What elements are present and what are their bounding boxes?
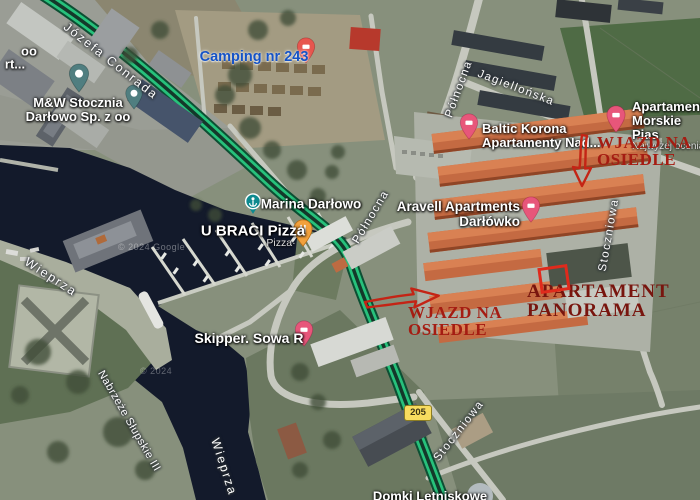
place-pin-icon[interactable] bbox=[69, 63, 90, 93]
poi-label-domki[interactable]: Domki Letniskowe bbox=[373, 489, 487, 500]
morskie-lodging-pin-icon[interactable] bbox=[606, 105, 626, 133]
red-building-marker bbox=[537, 264, 570, 294]
poi-label-aravell[interactable]: Aravell Apartments Darłówko bbox=[397, 200, 520, 229]
poi-label-marina[interactable]: Marina Darłowo bbox=[261, 197, 362, 212]
map-attribution-watermark-small: © 2024 bbox=[140, 366, 172, 376]
satellite-map: Józefa Conrada Północna Jagiellońska Pół… bbox=[0, 0, 700, 500]
poi-label-partial-line2: rt... bbox=[5, 57, 25, 72]
aravell-lodging-pin-icon[interactable] bbox=[522, 196, 541, 223]
annotation-wjazd-na-osiedle-top: WJAZD NA OSIEDLE bbox=[597, 134, 691, 169]
poi-sublabel-pizza: Pizza· bbox=[266, 237, 295, 249]
poi-label-camping[interactable]: Camping nr 243 bbox=[200, 49, 309, 65]
poi-label-stocznia[interactable]: M&W Stocznia Darłowo Sp. z oo bbox=[26, 96, 131, 124]
satellite-imagery bbox=[0, 0, 700, 500]
poi-label-skipper[interactable]: Skipper. Sowa R bbox=[195, 330, 304, 346]
map-attribution-watermark: © 2024 Google bbox=[118, 242, 185, 252]
red-arrow-right-icon bbox=[362, 284, 444, 319]
marina-icon[interactable] bbox=[244, 193, 262, 215]
red-arrow-down-icon bbox=[568, 133, 596, 194]
road-shield-205: 205 bbox=[404, 405, 432, 421]
baltic-korona-lodging-pin-icon[interactable] bbox=[460, 113, 479, 140]
